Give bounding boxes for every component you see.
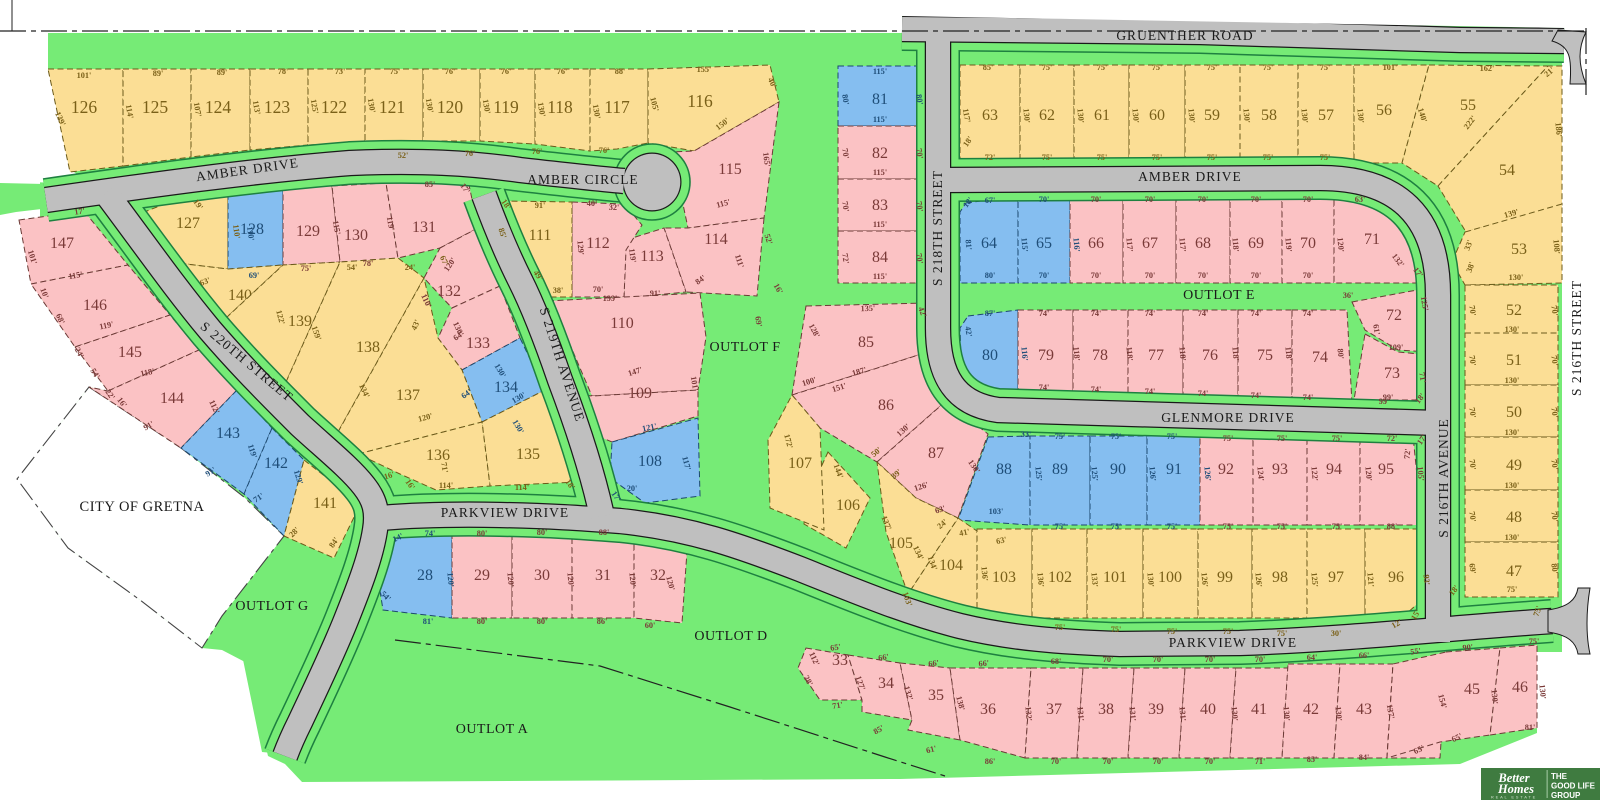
svg-text:105: 105 [889,535,913,552]
svg-text:70': 70' [1145,271,1156,280]
svg-text:74: 74 [1312,349,1328,366]
svg-text:121': 121' [1365,572,1375,587]
svg-text:GRUENTHER ROAD: GRUENTHER ROAD [1116,28,1253,43]
svg-text:24': 24' [405,263,416,272]
svg-text:133': 133' [1089,572,1099,587]
svg-text:124: 124 [205,97,232,117]
svg-text:76': 76' [557,67,568,76]
svg-text:130': 130' [1281,706,1291,721]
svg-text:76: 76 [1202,347,1218,364]
svg-text:115': 115' [873,272,887,281]
svg-text:136': 136' [979,566,989,581]
svg-text:70': 70' [1467,459,1477,471]
svg-text:OUTLOT E: OUTLOT E [1183,288,1255,303]
svg-text:125': 125' [1309,572,1319,587]
svg-text:46: 46 [1512,679,1528,696]
svg-text:108': 108' [1551,239,1561,254]
svg-text:123: 123 [264,97,291,117]
svg-text:130': 130' [1355,108,1365,123]
svg-text:54: 54 [1499,162,1515,179]
svg-text:GOOD LIFE: GOOD LIFE [1551,782,1596,791]
svg-text:90': 90' [1462,643,1473,653]
svg-text:75': 75' [1055,522,1066,531]
svg-text:115': 115' [873,115,887,124]
svg-text:80': 80' [840,94,851,106]
svg-text:130: 130 [344,227,368,244]
svg-text:69': 69' [753,316,764,328]
svg-text:90: 90 [1110,461,1126,478]
svg-text:91': 91' [650,289,661,298]
svg-text:130': 130' [1130,108,1140,123]
svg-text:70': 70' [1467,511,1477,523]
svg-text:115: 115 [718,161,741,178]
svg-text:74': 74' [1145,309,1156,318]
svg-text:70': 70' [1467,355,1477,367]
svg-text:70': 70' [1153,655,1164,664]
svg-text:115': 115' [1019,237,1029,252]
svg-text:75': 75' [1277,522,1288,531]
svg-text:70': 70' [1467,407,1477,419]
svg-text:129: 129 [296,223,320,240]
svg-text:116: 116 [687,91,713,111]
svg-text:80': 80' [1549,563,1559,575]
svg-text:126': 126' [1202,466,1212,481]
svg-text:126: 126 [71,97,98,117]
svg-text:118': 118' [1071,346,1081,361]
svg-text:72: 72 [1386,307,1402,324]
svg-text:80': 80' [914,94,925,106]
svg-text:31: 31 [595,567,611,584]
svg-text:75': 75' [1320,63,1331,72]
svg-text:42: 42 [1303,701,1319,718]
svg-text:52': 52' [398,151,409,160]
svg-text:70': 70' [1039,195,1050,204]
svg-text:91': 91' [535,201,546,210]
svg-text:147: 147 [50,235,74,252]
svg-text:74': 74' [1039,309,1050,318]
svg-text:50: 50 [1506,404,1522,421]
svg-text:134: 134 [494,379,518,396]
svg-text:88: 88 [996,461,1012,478]
svg-text:66': 66' [878,652,890,663]
svg-text:120': 120' [505,572,515,587]
svg-text:144: 144 [160,390,184,407]
svg-text:80': 80' [1336,348,1346,359]
svg-text:55: 55 [1460,97,1476,114]
svg-text:120': 120' [445,572,455,587]
svg-text:70': 70' [914,148,925,160]
svg-text:70: 70 [1300,235,1316,252]
svg-text:70': 70' [914,201,925,213]
svg-text:70': 70' [1198,195,1209,204]
svg-text:141: 141 [313,495,337,512]
svg-text:86': 86' [985,757,996,766]
svg-text:66': 66' [1359,651,1370,660]
svg-text:58: 58 [1261,107,1277,124]
svg-text:48: 48 [1506,509,1522,526]
svg-text:64': 64' [1307,653,1318,662]
svg-text:93': 93' [1422,574,1432,585]
svg-text:CITY OF GRETNA: CITY OF GRETNA [80,499,205,515]
svg-text:74': 74' [1039,383,1050,392]
svg-text:139: 139 [288,313,312,330]
svg-text:75': 75' [1167,522,1178,531]
svg-text:130': 130' [1241,108,1251,123]
svg-text:86: 86 [878,397,894,414]
svg-text:93: 93 [1272,461,1288,478]
svg-text:GROUP: GROUP [1551,791,1581,800]
svg-text:78: 78 [1092,347,1108,364]
svg-text:116': 116' [1019,346,1029,361]
svg-text:70': 70' [1251,271,1262,280]
svg-text:96: 96 [1388,569,1404,586]
svg-text:107: 107 [788,455,812,472]
svg-text:70': 70' [1549,511,1559,523]
svg-text:130': 130' [1229,706,1239,721]
svg-text:110: 110 [610,315,633,332]
svg-text:135': 135' [860,304,875,314]
svg-text:S 216TH AVENUE: S 216TH AVENUE [1436,418,1451,538]
svg-text:66': 66' [928,658,940,668]
svg-text:94: 94 [1326,461,1342,478]
svg-text:146: 146 [83,297,107,314]
svg-text:OUTLOT A: OUTLOT A [456,722,529,737]
svg-text:35: 35 [928,687,944,704]
svg-text:33: 33 [832,652,848,669]
svg-text:118': 118' [1283,346,1293,361]
svg-text:131: 131 [412,219,436,236]
svg-text:130': 130' [1505,325,1520,334]
svg-text:126': 126' [1253,572,1263,587]
svg-text:70': 70' [840,201,851,213]
svg-text:57: 57 [1318,107,1334,124]
svg-text:75': 75' [1223,627,1234,636]
svg-text:70': 70' [1303,195,1314,204]
svg-text:84': 84' [1359,753,1370,762]
svg-text:75': 75' [1277,629,1288,638]
svg-text:74': 74' [1198,309,1209,318]
svg-text:75': 75' [1223,522,1234,531]
svg-text:70': 70' [1103,757,1114,766]
svg-text:75': 75' [1529,637,1540,646]
svg-text:45: 45 [1464,681,1480,698]
svg-text:78': 78' [278,67,289,76]
svg-text:32': 32' [609,203,620,212]
svg-text:34: 34 [878,675,894,692]
svg-text:47: 47 [1506,563,1522,580]
svg-text:145: 145 [118,344,142,361]
svg-text:87': 87' [985,309,996,318]
svg-text:75': 75' [1152,63,1163,72]
svg-text:70': 70' [1091,271,1102,280]
svg-text:130': 130' [1505,533,1520,542]
svg-text:71': 71' [1255,757,1266,766]
svg-text:122': 122' [1309,466,1319,481]
svg-text:75': 75' [1332,434,1343,443]
svg-text:REAL ESTATE: REAL ESTATE [1491,795,1537,800]
svg-text:106: 106 [836,497,860,514]
svg-text:72': 72' [1403,448,1413,459]
svg-text:105': 105' [1415,466,1425,481]
svg-text:113: 113 [640,248,663,265]
svg-text:63': 63' [1355,195,1366,204]
svg-text:68': 68' [1051,657,1062,666]
svg-text:74': 74' [1145,387,1156,396]
svg-text:76': 76' [599,146,610,155]
svg-text:OUTLOT D: OUTLOT D [694,629,767,644]
svg-text:118': 118' [1230,346,1240,361]
svg-text:133: 133 [466,335,490,352]
svg-text:138: 138 [356,339,380,356]
svg-text:76': 76' [501,67,512,76]
svg-text:83: 83 [872,197,888,214]
svg-text:85: 85 [858,334,874,351]
svg-text:OUTLOT F: OUTLOT F [709,340,780,355]
svg-text:70': 70' [1549,407,1559,419]
svg-text:17': 17' [74,206,86,216]
svg-text:80: 80 [982,347,998,364]
svg-text:98: 98 [1272,569,1288,586]
svg-text:130': 130' [1186,108,1196,123]
svg-text:71: 71 [1364,231,1380,248]
svg-text:36': 36' [1343,291,1354,300]
svg-text:81': 81' [1525,723,1536,732]
svg-text:70': 70' [1103,655,1114,664]
svg-text:99: 99 [1217,569,1233,586]
svg-text:GLENMORE DRIVE: GLENMORE DRIVE [1161,410,1295,425]
svg-text:61: 61 [1094,107,1110,124]
svg-text:103: 103 [992,569,1016,586]
svg-text:199': 199' [603,294,618,303]
svg-text:120: 120 [437,97,464,117]
svg-text:84: 84 [872,249,888,266]
svg-text:30': 30' [1331,629,1342,638]
svg-text:S 216TH STREET: S 216TH STREET [1569,280,1584,396]
svg-text:54': 54' [347,263,358,272]
svg-text:41: 41 [1251,701,1267,718]
svg-text:THE: THE [1551,772,1568,781]
svg-text:75': 75' [1111,625,1122,634]
svg-text:143: 143 [216,425,240,442]
svg-text:71': 71' [832,700,844,711]
svg-text:75': 75' [1167,432,1178,441]
svg-text:66: 66 [1088,235,1104,252]
svg-text:118': 118' [1230,237,1240,252]
svg-text:130': 130' [1537,684,1547,699]
svg-text:42': 42' [963,326,974,338]
svg-text:36: 36 [980,701,996,718]
svg-text:117': 117' [1124,237,1134,252]
svg-text:129': 129' [575,240,585,255]
svg-text:101: 101 [1103,569,1127,586]
svg-text:70': 70' [1153,757,1164,766]
svg-text:75': 75' [1097,63,1108,72]
svg-text:115': 115' [873,168,887,177]
svg-text:75': 75' [1042,153,1053,162]
svg-text:142: 142 [264,455,288,472]
svg-text:40: 40 [1200,701,1216,718]
svg-text:70': 70' [1205,655,1216,664]
svg-text:70': 70' [593,285,604,294]
svg-text:80': 80' [537,617,548,626]
svg-text:131': 131' [1075,706,1085,721]
svg-text:76': 76' [465,149,476,158]
svg-text:75': 75' [1055,432,1066,441]
svg-text:74': 74' [1091,309,1102,318]
svg-text:74': 74' [1198,389,1209,398]
svg-text:78': 78' [363,259,374,268]
svg-text:70': 70' [1198,271,1209,280]
svg-text:75': 75' [1042,63,1053,72]
svg-text:OUTLOT G: OUTLOT G [235,599,308,614]
svg-text:74': 74' [425,529,436,538]
svg-text:51: 51 [1506,352,1522,369]
svg-text:108: 108 [638,453,662,470]
svg-text:116': 116' [1071,237,1081,252]
svg-text:71': 71' [1417,372,1428,384]
svg-text:69': 69' [249,271,260,280]
svg-text:75': 75' [1263,153,1274,162]
svg-text:75': 75' [1207,63,1218,72]
svg-text:111: 111 [529,227,552,244]
svg-text:112: 112 [586,235,609,252]
svg-text:102: 102 [1048,569,1072,586]
svg-text:75': 75' [1320,153,1331,162]
svg-text:101': 101' [1383,63,1398,72]
svg-text:64: 64 [981,235,997,252]
svg-text:70': 70' [1255,655,1266,664]
svg-text:28: 28 [417,567,433,584]
svg-text:29: 29 [474,567,490,584]
svg-text:75': 75' [1111,432,1122,441]
svg-text:65': 65' [830,642,842,653]
svg-text:73': 73' [335,67,346,76]
svg-text:38': 38' [553,286,564,295]
svg-text:73: 73 [1384,365,1400,382]
svg-text:130': 130' [1509,273,1524,282]
svg-text:61': 61' [1371,324,1382,336]
svg-text:80': 80' [985,271,996,280]
svg-text:40': 40' [587,199,598,208]
svg-text:70': 70' [1549,355,1559,367]
svg-text:89: 89 [1052,461,1068,478]
svg-text:30: 30 [534,567,550,584]
svg-text:65: 65 [1036,235,1052,252]
svg-text:85': 85' [1307,755,1318,764]
svg-text:92: 92 [1218,461,1234,478]
svg-text:130': 130' [1505,428,1520,437]
svg-text:69': 69' [1467,563,1477,575]
svg-text:109': 109' [1389,343,1404,352]
svg-text:55': 55' [1410,646,1422,656]
svg-text:39: 39 [1148,701,1164,718]
svg-text:75': 75' [1152,153,1163,162]
svg-text:125': 125' [1033,466,1043,481]
svg-text:114': 114' [439,481,453,490]
svg-text:88': 88' [1387,522,1398,531]
svg-text:136': 136' [1035,572,1045,587]
svg-text:60': 60' [645,621,656,630]
svg-text:66': 66' [978,659,989,669]
svg-text:115': 115' [873,67,887,76]
svg-text:70': 70' [1251,195,1262,204]
svg-text:AMBER DRIVE: AMBER DRIVE [1138,169,1242,184]
svg-text:101': 101' [77,71,92,80]
svg-text:75: 75 [1257,347,1273,364]
svg-text:132': 132' [1023,706,1033,721]
svg-text:62: 62 [1039,107,1055,124]
svg-text:130': 130' [1075,108,1085,123]
svg-text:75': 75' [1332,522,1343,531]
svg-text:80': 80' [477,617,488,626]
svg-text:70': 70' [1467,305,1477,317]
svg-text:130': 130' [1333,706,1343,721]
svg-text:AMBER CIRCLE: AMBER CIRCLE [527,172,638,187]
svg-text:162': 162' [1480,64,1495,73]
svg-text:75': 75' [390,67,401,76]
svg-text:89': 89' [153,69,164,78]
svg-text:75': 75' [1223,434,1234,443]
svg-text:74': 74' [1091,385,1102,394]
svg-text:119': 119' [1283,237,1293,252]
svg-text:88': 88' [599,528,610,537]
svg-text:80': 80' [537,528,548,537]
svg-text:33': 33' [1021,430,1032,439]
svg-text:75': 75' [1167,627,1178,636]
svg-text:186': 186' [1553,122,1563,137]
svg-text:85': 85' [425,180,436,189]
svg-text:70': 70' [1091,195,1102,204]
svg-text:130': 130' [1145,572,1155,587]
svg-text:81: 81 [872,91,888,108]
svg-text:130': 130' [1505,481,1520,490]
svg-text:127: 127 [176,215,200,232]
svg-text:114: 114 [704,231,727,248]
svg-text:52: 52 [1506,302,1522,319]
svg-text:88': 88' [615,67,626,76]
svg-text:117': 117' [1177,237,1187,252]
svg-text:80': 80' [477,529,488,538]
svg-text:95: 95 [1378,461,1394,478]
svg-text:74': 74' [1251,309,1262,318]
svg-text:60: 60 [1149,107,1165,124]
svg-text:104: 104 [939,557,963,574]
svg-text:70': 70' [1145,195,1156,204]
svg-text:20': 20' [627,484,638,493]
svg-text:125': 125' [1089,466,1099,481]
svg-text:38: 38 [1098,701,1114,718]
svg-text:131': 131' [1127,706,1137,721]
svg-text:130': 130' [1505,376,1520,385]
svg-text:56: 56 [1376,102,1392,119]
svg-text:97: 97 [1328,569,1344,586]
svg-text:115': 115' [873,220,887,229]
svg-text:119: 119 [493,97,519,117]
svg-text:89': 89' [217,68,228,77]
svg-text:132: 132 [437,283,461,300]
svg-text:121: 121 [379,97,405,117]
svg-text:72': 72' [1387,434,1398,443]
svg-text:91: 91 [1166,461,1182,478]
svg-text:81': 81' [423,617,434,626]
svg-text:75': 75' [1111,522,1122,531]
svg-text:70': 70' [1549,305,1559,317]
svg-text:114': 114' [515,483,529,492]
svg-text:74': 74' [1303,309,1314,318]
svg-text:155': 155' [697,65,712,74]
svg-text:37: 37 [1046,701,1062,718]
svg-text:75': 75' [1207,153,1218,162]
